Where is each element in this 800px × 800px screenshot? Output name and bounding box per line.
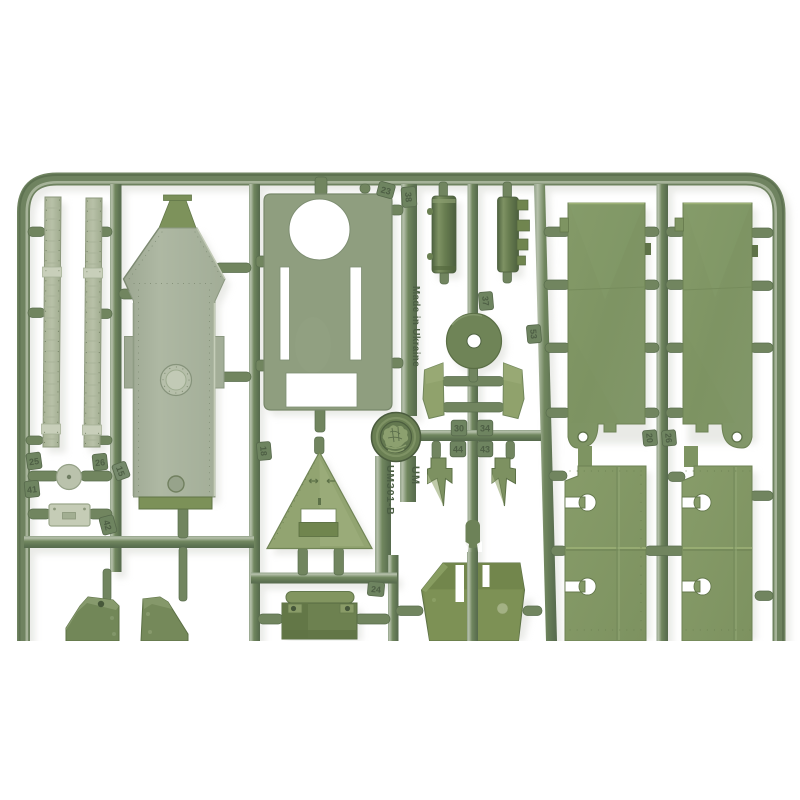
svg-text:30: 30	[454, 424, 464, 434]
svg-text:41: 41	[27, 484, 38, 495]
svg-text:26: 26	[663, 433, 674, 444]
svg-text:24: 24	[371, 584, 382, 595]
svg-text:44: 44	[453, 445, 463, 455]
svg-text:43: 43	[480, 445, 490, 455]
svg-text:26: 26	[95, 457, 106, 468]
svg-text:20: 20	[644, 433, 655, 444]
svg-text:UM: UM	[409, 466, 421, 485]
svg-text:18: 18	[258, 446, 269, 457]
svg-text:53: 53	[528, 329, 539, 340]
svg-text:37: 37	[480, 296, 491, 307]
svg-text:34: 34	[480, 424, 490, 434]
svg-text:38: 38	[403, 192, 414, 203]
svg-text:Made in Ukraine: Made in Ukraine	[410, 286, 421, 367]
svg-text:25: 25	[28, 456, 39, 467]
svg-text:UM301-B: UM301-B	[384, 465, 396, 516]
